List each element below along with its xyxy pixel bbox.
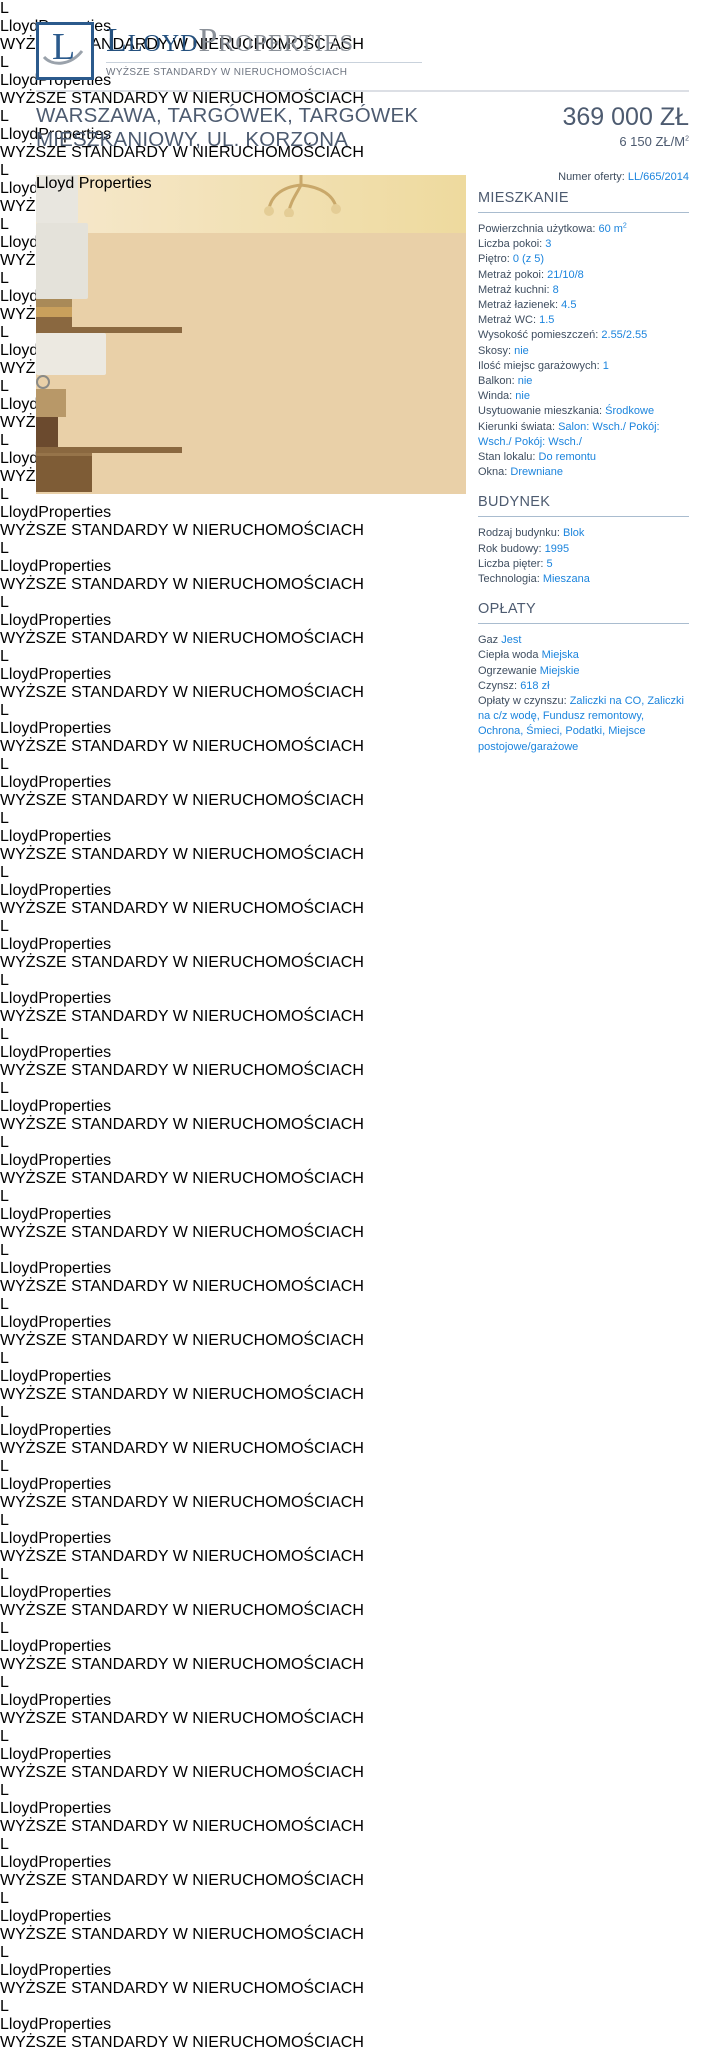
detail-value: 1.5 xyxy=(539,314,554,326)
watermark-logo-icon: L xyxy=(0,1458,725,1476)
detail-label: Liczba pokoi: xyxy=(478,238,545,250)
watermark-tagline: WYŻSZE STANDARDY W NIERUCHOMOŚCIACH xyxy=(0,1764,725,1782)
watermark-tile: LLloydPropertiesWYŻSZE STANDARDY W NIERU… xyxy=(0,1296,725,1350)
detail-value: Drewniane xyxy=(510,466,563,478)
watermark-tagline: WYŻSZE STANDARDY W NIERUCHOMOŚCIACH xyxy=(0,1710,725,1728)
detail-row: Liczba pokoi: 3 xyxy=(478,237,689,252)
watermark-logo-icon: L xyxy=(0,1242,725,1260)
watermark-logo-icon: L xyxy=(0,1404,725,1422)
detail-label: Usytuowanie mieszkania: xyxy=(478,405,605,417)
watermark-logo-icon: L xyxy=(0,1620,725,1638)
detail-row: Opłaty w czynszu: Zaliczki na CO, Zalicz… xyxy=(478,694,689,755)
watermark-name: LloydProperties xyxy=(0,1530,725,1548)
watermark-tile: LLloydPropertiesWYŻSZE STANDARDY W NIERU… xyxy=(0,1782,725,1836)
watermark-logo-icon: L xyxy=(0,864,725,882)
watermark-name: LloydProperties xyxy=(0,774,725,792)
brand-primary: Lloyd xyxy=(106,24,198,58)
brand-tagline: WYŻSZE STANDARDY W NIERUCHOMOŚCIACH xyxy=(106,62,422,78)
detail-value: 21/10/8 xyxy=(547,269,584,281)
watermark-name: LloydProperties xyxy=(0,2016,725,2034)
watermark-tile: LLloydPropertiesWYŻSZE STANDARDY W NIERU… xyxy=(0,1620,725,1674)
detail-value: Miejska xyxy=(542,649,579,661)
watermark-tagline: WYŻSZE STANDARDY W NIERUCHOMOŚCIACH xyxy=(0,1008,725,1026)
detail-row: Liczba pięter: 5 xyxy=(478,557,689,572)
watermark-tagline: WYŻSZE STANDARDY W NIERUCHOMOŚCIACH xyxy=(0,1872,725,1890)
section-heading: MIESZKANIE xyxy=(478,190,689,206)
watermark-tagline: WYŻSZE STANDARDY W NIERUCHOMOŚCIACH xyxy=(0,1494,725,1512)
detail-label: Ciepła woda xyxy=(478,649,542,661)
detail-value: 0 (z 5) xyxy=(513,253,544,265)
detail-row: Ogrzewanie Miejskie xyxy=(478,664,689,679)
detail-row: Gaz Jest xyxy=(478,633,689,648)
watermark-tagline: WYŻSZE STANDARDY W NIERUCHOMOŚCIACH xyxy=(0,2034,725,2048)
section-heading: OPŁATY xyxy=(478,601,689,617)
detail-label: Powierzchnia użytkowa: xyxy=(478,223,598,235)
detail-label: Piętro: xyxy=(478,253,513,265)
detail-label: Gaz xyxy=(478,634,501,646)
watermark-name: LloydProperties xyxy=(0,936,725,954)
watermark-tagline: WYŻSZE STANDARDY W NIERUCHOMOŚCIACH xyxy=(0,792,725,810)
watermark-tagline: WYŻSZE STANDARDY W NIERUCHOMOŚCIACH xyxy=(0,1926,725,1944)
detail-value-sup: 2 xyxy=(623,222,627,229)
detail-label: Rok budowy: xyxy=(478,543,545,555)
watermark-name: LloydProperties xyxy=(0,1692,725,1710)
watermark-tile: LLloydPropertiesWYŻSZE STANDARDY W NIERU… xyxy=(0,1080,725,1134)
detail-value: Mieszana xyxy=(543,573,590,585)
brand-name: LloydProperties xyxy=(106,24,422,58)
detail-value: 8 xyxy=(553,284,559,296)
price: 369 000 ZŁ xyxy=(563,103,690,132)
detail-value: 618 zł xyxy=(520,680,549,692)
watermark-tile: LLloydPropertiesWYŻSZE STANDARDY W NIERU… xyxy=(0,1728,725,1782)
detail-value: 1 xyxy=(603,360,609,372)
photo-drawers xyxy=(36,453,92,492)
detail-row: Kierunki świata: Salon: Wsch./ Pokój: Ws… xyxy=(478,420,689,450)
watermark-tagline: WYŻSZE STANDARDY W NIERUCHOMOŚCIACH xyxy=(0,1980,725,1998)
watermark-tile: LLloydPropertiesWYŻSZE STANDARDY W NIERU… xyxy=(0,1458,725,1512)
section-mieszkanie: MIESZKANIEPowierzchnia użytkowa: 60 m2Li… xyxy=(478,190,689,480)
watermark-tagline: WYŻSZE STANDARDY W NIERUCHOMOŚCIACH xyxy=(0,1278,725,1296)
section-underline xyxy=(478,212,689,213)
detail-row: Skosy: nie xyxy=(478,344,689,359)
price-per-m2-sup: 2 xyxy=(685,136,689,143)
watermark-tile: LLloydPropertiesWYŻSZE STANDARDY W NIERU… xyxy=(0,1404,725,1458)
detail-row: Stan lokalu: Do remontu xyxy=(478,450,689,465)
detail-label: Rodzaj budynku: xyxy=(478,527,563,539)
section-budynek: BUDYNEKRodzaj budynku: BlokRok budowy: 1… xyxy=(478,494,689,587)
watermark-logo-icon: L xyxy=(0,0,725,18)
detail-label: Technologia: xyxy=(478,573,543,585)
watermark-name: LloydProperties xyxy=(0,1152,725,1170)
watermark-name: LloydProperties xyxy=(0,990,725,1008)
watermark-tile: LLloydPropertiesWYŻSZE STANDARDY W NIERU… xyxy=(0,1242,725,1296)
detail-row: Ciepła woda Miejska xyxy=(478,648,689,663)
watermark-logo-icon: L xyxy=(0,1944,725,1962)
detail-value: Miejskie xyxy=(540,665,580,677)
watermark-logo-icon: L xyxy=(0,1188,725,1206)
photo-cabinet-panel xyxy=(36,223,88,299)
watermark-name: LloydProperties xyxy=(0,882,725,900)
watermark-name: LloydProperties xyxy=(0,1908,725,1926)
detail-row: Rodzaj budynku: Blok xyxy=(478,526,689,541)
detail-row: Metraż pokoi: 21/10/8 xyxy=(478,268,689,283)
watermark-logo-icon: L xyxy=(0,1836,725,1854)
detail-row: Technologia: Mieszana xyxy=(478,572,689,587)
watermark-name: LloydProperties xyxy=(0,1098,725,1116)
watermark-logo-icon: L xyxy=(0,1782,725,1800)
brand-text-block: LloydProperties WYŻSZE STANDARDY W NIERU… xyxy=(106,22,422,78)
watermark-name: LloydProperties xyxy=(0,1962,725,1980)
page-title: WARSZAWA, TARGÓWEK, TARGÓWEK MIESZKANIOW… xyxy=(36,104,481,152)
offer-number-value: LL/665/2014 xyxy=(628,171,689,183)
watermark-logo-icon: L xyxy=(0,1026,725,1044)
listing-photo: L Lloyd Properties xyxy=(36,175,466,494)
detail-value: Blok xyxy=(563,527,584,539)
detail-value: 5 xyxy=(546,558,552,570)
detail-label: Ogrzewanie xyxy=(478,665,540,677)
detail-value: 3 xyxy=(545,238,551,250)
detail-row: Metraż kuchni: 8 xyxy=(478,283,689,298)
watermark-tagline: WYŻSZE STANDARDY W NIERUCHOMOŚCIACH xyxy=(0,1332,725,1350)
watermark-tagline: WYŻSZE STANDARDY W NIERUCHOMOŚCIACH xyxy=(0,1062,725,1080)
watermark-tile: LLloydPropertiesWYŻSZE STANDARDY W NIERU… xyxy=(0,1944,725,1998)
brand-secondary: Properties xyxy=(198,24,353,58)
watermark-tagline: WYŻSZE STANDARDY W NIERUCHOMOŚCIACH xyxy=(0,954,725,972)
detail-row: Rok budowy: 1995 xyxy=(478,542,689,557)
watermark-tile: LLloydPropertiesWYŻSZE STANDARDY W NIERU… xyxy=(0,1674,725,1728)
watermark-name: LloydProperties xyxy=(0,1314,725,1332)
photo-picture-frame xyxy=(44,323,66,349)
photo-shelf-books xyxy=(36,417,58,447)
offer-number-label: Numer oferty: xyxy=(558,171,625,183)
watermark-tagline: WYŻSZE STANDARDY W NIERUCHOMOŚCIACH xyxy=(0,1440,725,1458)
watermark-tagline: WYŻSZE STANDARDY W NIERUCHOMOŚCIACH xyxy=(0,1818,725,1836)
watermark-logo-icon: L xyxy=(0,1890,725,1908)
detail-label: Ilość miejsc garażowych: xyxy=(478,360,603,372)
detail-label: Czynsz: xyxy=(478,680,520,692)
watermark-tagline: WYŻSZE STANDARDY W NIERUCHOMOŚCIACH xyxy=(0,1386,725,1404)
watermark-name: LloydProperties xyxy=(0,1584,725,1602)
detail-label: Metraż kuchni: xyxy=(478,284,553,296)
detail-value: Środkowe xyxy=(605,405,654,417)
watermark-tile: LLloydPropertiesWYŻSZE STANDARDY W NIERU… xyxy=(0,810,725,864)
watermark-logo-icon: L xyxy=(0,1512,725,1530)
detail-label: Okna: xyxy=(478,466,510,478)
watermark-name: LloydProperties xyxy=(0,1260,725,1278)
watermark-name: LloydProperties xyxy=(0,1206,725,1224)
watermark-name: LloydProperties xyxy=(0,1746,725,1764)
photo-cabinet-handle xyxy=(36,375,50,389)
watermark-logo-icon: L xyxy=(0,1728,725,1746)
section-opłaty: OPŁATYGaz JestCiepła woda MiejskaOgrzewa… xyxy=(478,601,689,755)
photo-picture-frame xyxy=(72,327,92,349)
detail-value: nie xyxy=(518,375,533,387)
watermark-tile: LLloydPropertiesWYŻSZE STANDARDY W NIERU… xyxy=(0,918,725,972)
brand-logo-icon: L xyxy=(36,22,94,80)
detail-label: Winda: xyxy=(478,390,515,402)
detail-value: nie xyxy=(514,345,529,357)
watermark-logo-icon: L xyxy=(0,1080,725,1098)
watermark-logo-icon: L xyxy=(0,810,725,828)
detail-row: Winda: nie xyxy=(478,389,689,404)
watermark-tagline: WYŻSZE STANDARDY W NIERUCHOMOŚCIACH xyxy=(0,1602,725,1620)
logo-swoosh-icon xyxy=(39,25,85,71)
watermark-name: LloydProperties xyxy=(0,1638,725,1656)
detail-value: 60 m2 xyxy=(598,223,626,235)
detail-label: Balkon: xyxy=(478,375,518,387)
detail-row: Metraż łazienek: 4.5 xyxy=(478,298,689,313)
watermark-tile: LLloydPropertiesWYŻSZE STANDARDY W NIERU… xyxy=(0,1998,725,2048)
watermark-logo-icon: L xyxy=(0,1134,725,1152)
watermark-tile: LLloydPropertiesWYŻSZE STANDARDY W NIERU… xyxy=(0,972,725,1026)
detail-row: Okna: Drewniane xyxy=(478,465,689,480)
detail-label: Opłaty w czynszu: xyxy=(478,695,570,707)
detail-label: Liczba pięter: xyxy=(478,558,546,570)
watermark-name: LloydProperties xyxy=(0,1368,725,1386)
section-underline xyxy=(478,623,689,624)
detail-row: Powierzchnia użytkowa: 60 m2 xyxy=(478,222,689,237)
header-divider xyxy=(36,90,689,92)
watermark-tagline: WYŻSZE STANDARDY W NIERUCHOMOŚCIACH xyxy=(0,1224,725,1242)
offer-number: Numer oferty: LL/665/2014 xyxy=(558,171,689,183)
detail-row: Piętro: 0 (z 5) xyxy=(478,252,689,267)
detail-row: Czynsz: 618 zł xyxy=(478,679,689,694)
photo-watermark-primary: Lloyd xyxy=(36,175,74,192)
watermark-logo-icon: L xyxy=(0,1296,725,1314)
price-per-m2: 6 150 ZŁ/M2 xyxy=(619,134,689,149)
watermark-name: LloydProperties xyxy=(0,1854,725,1872)
detail-label: Metraż WC: xyxy=(478,314,539,326)
detail-row: Ilość miejsc garażowych: 1 xyxy=(478,359,689,374)
watermark-tile: LLloydPropertiesWYŻSZE STANDARDY W NIERU… xyxy=(0,1890,725,1944)
detail-label: Stan lokalu: xyxy=(478,451,539,463)
watermark-tagline: WYŻSZE STANDARDY W NIERUCHOMOŚCIACH xyxy=(0,900,725,918)
detail-value: Do remontu xyxy=(539,451,596,463)
watermark-tile: LLloydPropertiesWYŻSZE STANDARDY W NIERU… xyxy=(0,1512,725,1566)
watermark-logo-icon: L xyxy=(0,1566,725,1584)
details-column: MIESZKANIEPowierzchnia użytkowa: 60 m2Li… xyxy=(478,190,689,765)
photo-watermark-secondary: Properties xyxy=(79,175,152,192)
section-heading: BUDYNEK xyxy=(478,494,689,510)
watermark-tile: LLloydPropertiesWYŻSZE STANDARDY W NIERU… xyxy=(0,1134,725,1188)
photo-chandelier xyxy=(241,175,361,217)
detail-label: Wysokość pomieszczeń: xyxy=(478,329,601,341)
watermark-name: LloydProperties xyxy=(0,1422,725,1440)
watermark-tagline: WYŻSZE STANDARDY W NIERUCHOMOŚCIACH xyxy=(0,1170,725,1188)
detail-row: Metraż WC: 1.5 xyxy=(478,313,689,328)
detail-label: Metraż pokoi: xyxy=(478,269,547,281)
detail-label: Metraż łazienek: xyxy=(478,299,561,311)
detail-value: 1995 xyxy=(545,543,569,555)
photo-shelf-books xyxy=(36,307,72,317)
watermark-logo-icon: L xyxy=(0,1998,725,2016)
detail-row: Balkon: nie xyxy=(478,374,689,389)
section-underline xyxy=(478,516,689,517)
price-per-m2-text: 6 150 ZŁ/M xyxy=(619,134,685,149)
detail-value: 2.55/2.55 xyxy=(601,329,647,341)
photo-shelf-books xyxy=(36,299,72,307)
watermark-logo-icon: L xyxy=(0,918,725,936)
watermark-name: LloydProperties xyxy=(0,828,725,846)
watermark-tile: LLloydPropertiesWYŻSZE STANDARDY W NIERU… xyxy=(0,1836,725,1890)
watermark-tagline: WYŻSZE STANDARDY W NIERUCHOMOŚCIACH xyxy=(0,846,725,864)
watermark-logo-icon: L xyxy=(0,972,725,990)
detail-label: Kierunki świata: xyxy=(478,421,558,433)
watermark-tagline: WYŻSZE STANDARDY W NIERUCHOMOŚCIACH xyxy=(0,1116,725,1134)
brand-logo: L LloydProperties WYŻSZE STANDARDY W NIE… xyxy=(36,22,422,80)
watermark-tagline: WYŻSZE STANDARDY W NIERUCHOMOŚCIACH xyxy=(0,1548,725,1566)
detail-label: Skosy: xyxy=(478,345,514,357)
watermark-tile: LLloydPropertiesWYŻSZE STANDARDY W NIERU… xyxy=(0,864,725,918)
detail-value: Jest xyxy=(501,634,521,646)
watermark-tile: LLloydPropertiesWYŻSZE STANDARDY W NIERU… xyxy=(0,1026,725,1080)
detail-row: Usytuowanie mieszkania: Środkowe xyxy=(478,404,689,419)
photo-shelf-books xyxy=(36,389,66,417)
watermark-name: LloydProperties xyxy=(0,1044,725,1062)
watermark-name: LloydProperties xyxy=(0,1800,725,1818)
photo-watermark-band: Lloyd Properties xyxy=(36,175,152,193)
detail-value: 4.5 xyxy=(561,299,576,311)
watermark-tile: LLloydPropertiesWYŻSZE STANDARDY W NIERU… xyxy=(0,1188,725,1242)
watermark-tagline: WYŻSZE STANDARDY W NIERUCHOMOŚCIACH xyxy=(0,1656,725,1674)
watermark-tile: LLloydPropertiesWYŻSZE STANDARDY W NIERU… xyxy=(0,1350,725,1404)
watermark-logo-icon: L xyxy=(0,1674,725,1692)
watermark-name: LloydProperties xyxy=(0,1476,725,1494)
watermark-tile: LLloydPropertiesWYŻSZE STANDARDY W NIERU… xyxy=(0,1566,725,1620)
watermark-logo-icon: L xyxy=(0,1350,725,1368)
detail-value: nie xyxy=(515,390,530,402)
detail-row: Wysokość pomieszczeń: 2.55/2.55 xyxy=(478,328,689,343)
